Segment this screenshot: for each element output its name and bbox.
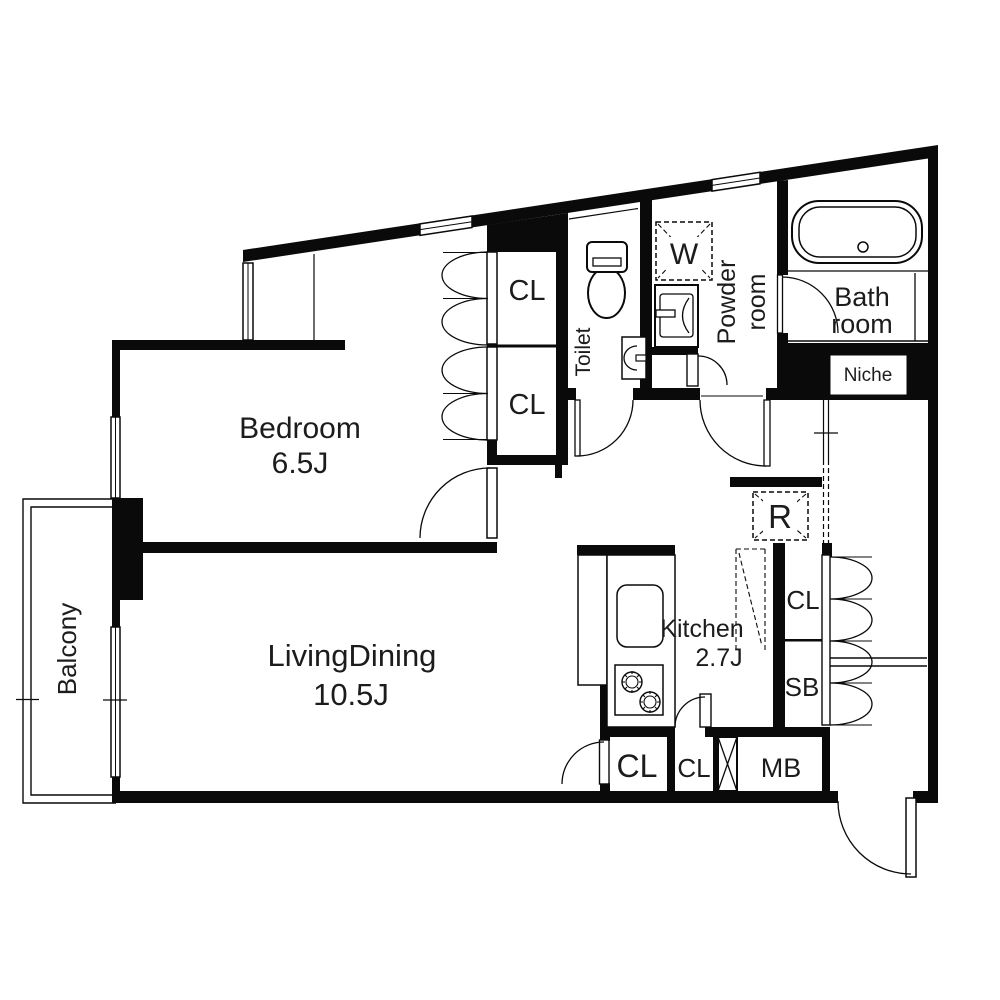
- hall-closet-door-swing: [562, 740, 609, 784]
- burner-icon: [640, 691, 660, 713]
- bedroom-size-label: 6.5J: [272, 447, 329, 480]
- bedroom-left-wall-upper: [112, 340, 120, 418]
- kitchen-label: Kitchen: [660, 615, 743, 643]
- living-dining-size-label: 10.5J: [313, 677, 389, 712]
- bathtub-icon: [792, 201, 922, 263]
- bedroom-closet-lower-label: CL: [508, 389, 545, 421]
- toilet-basin-icon: [622, 337, 646, 379]
- toilet-label: Toilet: [572, 327, 595, 376]
- bath-room-label-line1: Bath: [834, 282, 890, 312]
- kitchen-bottom-wall-b: [705, 727, 830, 737]
- kitchen-bottom-wall-a: [600, 727, 675, 737]
- bottom-exterior-wall: [112, 791, 838, 803]
- pipe-shaft-icon: [718, 737, 737, 791]
- niche-label: Niche: [844, 365, 893, 386]
- hall-closet-label: CL: [617, 748, 658, 784]
- toilet-door-swing: [575, 400, 633, 456]
- powder-room-label-line1: Powder: [713, 260, 741, 345]
- meter-box-label: MB: [761, 753, 802, 783]
- corridor-closet-doors: [822, 555, 872, 725]
- washbasin-icon: [655, 285, 698, 347]
- bedroom-left-window: [111, 417, 120, 498]
- refrigerator-label: R: [768, 498, 792, 535]
- meter-box-right-wall: [822, 727, 830, 791]
- kitchen-sink-icon: [617, 585, 663, 647]
- kitchen-closet-label: CL: [677, 753, 710, 783]
- bath-door-swing: [778, 275, 839, 333]
- burner-icon: [622, 671, 642, 693]
- living-left-wall-lower: [112, 777, 120, 803]
- washer-label: W: [670, 238, 699, 271]
- bedroom-closet-upper-label: CL: [508, 275, 545, 307]
- living-left-wall-upper: [112, 600, 120, 627]
- closet-divider-wall: [487, 345, 568, 348]
- fridge-top-wall: [730, 477, 822, 487]
- corridor-partition: [814, 400, 838, 543]
- hall-wall-a: [556, 388, 576, 400]
- shoe-box-label: SB: [785, 672, 820, 702]
- kitchen-size-label: 2.7J: [695, 644, 742, 672]
- powder-bath-wall-upper: [777, 180, 788, 275]
- corridor-closet-back-wall: [773, 543, 785, 737]
- bath-room-label-line2: room: [831, 309, 893, 339]
- bedroom-north-window: [243, 263, 253, 340]
- closet-row-divider-a: [667, 737, 675, 791]
- bedroom-bottom-wall: [143, 542, 497, 553]
- balcony-label: Balcony: [52, 603, 82, 696]
- bedroom-door-swing: [420, 468, 497, 538]
- slope-window-bedroom: [420, 216, 472, 235]
- passage-top-wall: [487, 455, 568, 465]
- closet-bottom-nub: [487, 440, 497, 456]
- hall-nub: [555, 465, 562, 478]
- spine-wall: [556, 213, 568, 465]
- living-dining-label: LivingDining: [268, 638, 437, 673]
- balcony-window: [103, 627, 127, 777]
- slope-window-powder: [712, 172, 760, 191]
- bedroom-top-wall: [112, 340, 345, 350]
- balcony-pier: [112, 498, 143, 600]
- toilet-icon: [587, 242, 627, 318]
- floor-plan-page: Bedroom 6.5J LivingDining 10.5J Kitchen …: [0, 0, 1000, 1000]
- kitchen-top-wall: [577, 545, 675, 555]
- right-exterior-wall: [928, 148, 938, 803]
- floor-plan-drawing: Bedroom 6.5J LivingDining 10.5J Kitchen …: [0, 0, 1000, 1000]
- entrance-door-swing: [838, 798, 916, 877]
- kitchen-closet-door-swing: [675, 694, 711, 727]
- bedroom-label: Bedroom: [239, 412, 361, 445]
- corridor-closet-label: CL: [786, 585, 819, 615]
- powder-hall-door-swing: [700, 396, 770, 466]
- powder-folding-door: [687, 354, 727, 386]
- hall-wall-b: [633, 388, 700, 400]
- powder-room-label-line2: room: [743, 274, 771, 331]
